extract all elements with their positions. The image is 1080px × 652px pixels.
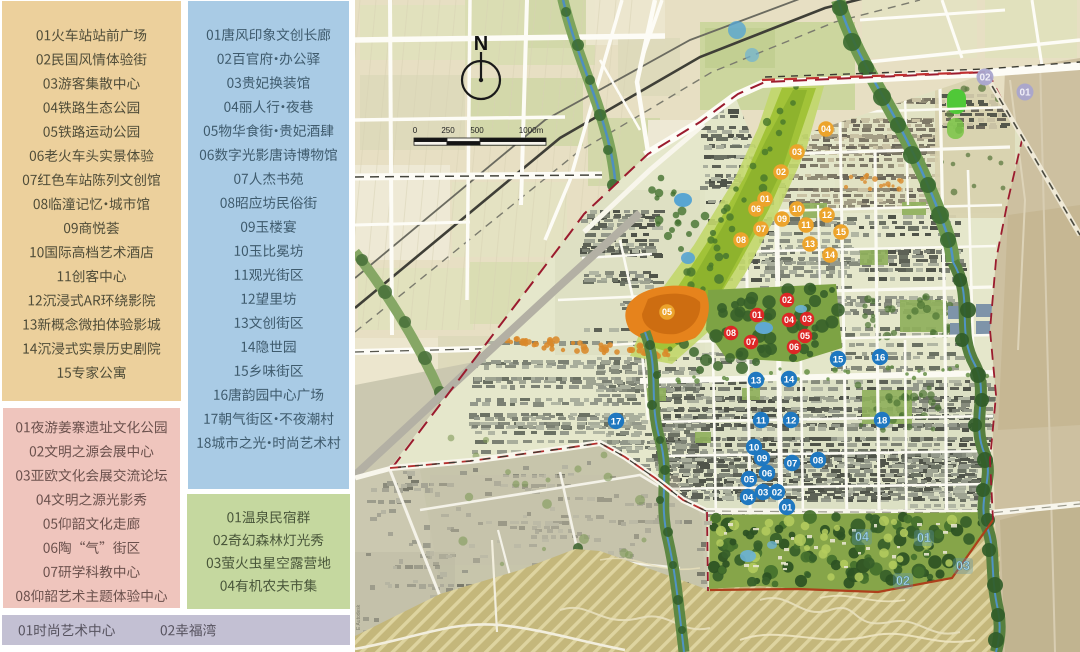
svg-text:07: 07 [746, 337, 756, 347]
svg-text:01: 01 [782, 502, 793, 513]
svg-text:500: 500 [470, 126, 484, 135]
svg-text:08: 08 [813, 455, 824, 466]
svg-text:16: 16 [875, 352, 886, 363]
svg-text:03: 03 [792, 147, 802, 157]
svg-text:1000m: 1000m [519, 126, 544, 135]
svg-text:11: 11 [756, 415, 767, 426]
svg-text:08: 08 [736, 235, 746, 245]
svg-text:10: 10 [792, 204, 802, 214]
svg-text:250: 250 [441, 126, 455, 135]
svg-text:05: 05 [744, 474, 755, 485]
svg-text:09: 09 [757, 453, 768, 464]
svg-text:10: 10 [749, 442, 760, 453]
svg-text:07: 07 [756, 224, 766, 234]
svg-text:11: 11 [801, 220, 811, 230]
svg-text:15: 15 [836, 227, 846, 237]
svg-text:13: 13 [751, 375, 762, 386]
svg-text:17: 17 [611, 416, 622, 427]
svg-text:02: 02 [772, 487, 783, 498]
svg-text:09: 09 [777, 214, 787, 224]
svg-text:06: 06 [762, 468, 773, 479]
svg-text:03: 03 [758, 487, 769, 498]
svg-text:07: 07 [787, 458, 798, 469]
svg-text:04: 04 [784, 315, 794, 325]
svg-text:03: 03 [802, 314, 812, 324]
svg-text:05: 05 [800, 331, 810, 341]
svg-text:02: 02 [896, 574, 910, 588]
svg-text:04: 04 [855, 530, 869, 544]
svg-text:02: 02 [776, 167, 786, 177]
svg-text:12: 12 [822, 210, 832, 220]
svg-text:13: 13 [805, 239, 815, 249]
svg-text:01: 01 [760, 194, 770, 204]
svg-text:E Autodesk: E Autodesk [356, 604, 362, 630]
svg-text:01: 01 [1019, 88, 1031, 99]
svg-text:N: N [474, 33, 488, 55]
svg-text:08: 08 [726, 328, 736, 338]
svg-text:0: 0 [413, 126, 418, 135]
svg-text:18: 18 [877, 415, 888, 426]
svg-text:04: 04 [743, 492, 754, 503]
svg-text:15: 15 [833, 354, 844, 365]
svg-text:03: 03 [956, 559, 970, 573]
svg-text:14: 14 [825, 250, 835, 260]
svg-text:01: 01 [917, 531, 931, 545]
svg-text:06: 06 [751, 204, 761, 214]
svg-text:05: 05 [662, 307, 672, 317]
svg-text:01: 01 [752, 310, 762, 320]
svg-text:02: 02 [979, 73, 991, 84]
svg-text:06: 06 [789, 342, 799, 352]
svg-text:12: 12 [786, 415, 797, 426]
svg-text:14: 14 [784, 374, 795, 385]
svg-text:04: 04 [821, 124, 831, 134]
svg-text:02: 02 [782, 295, 792, 305]
